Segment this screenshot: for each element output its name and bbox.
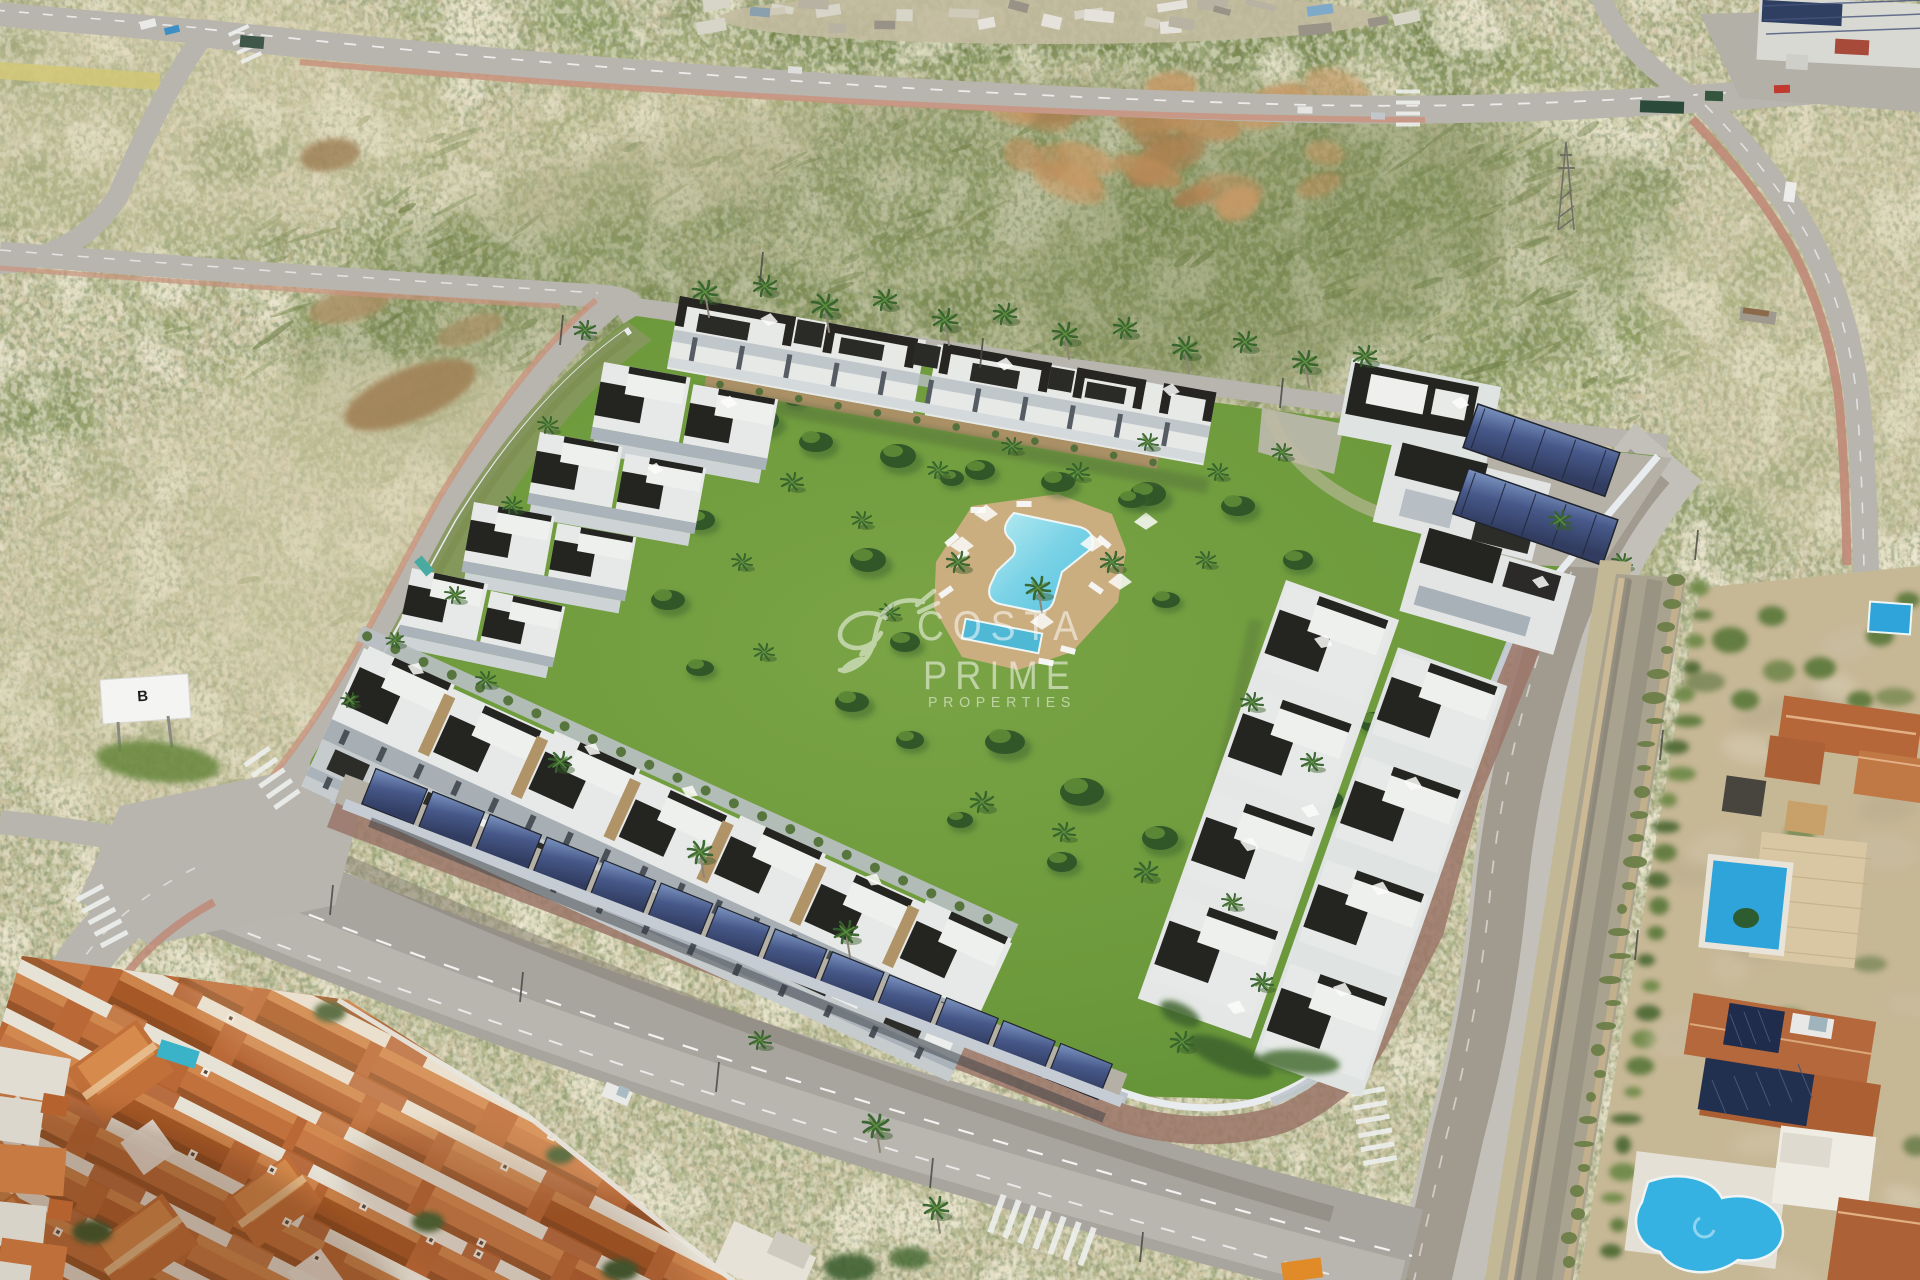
- svg-text:B: B: [137, 688, 149, 706]
- svg-text:PROPERTIES: PROPERTIES: [928, 694, 1076, 711]
- svg-text:COSTA: COSTA: [917, 602, 1087, 649]
- svg-text:PRIME: PRIME: [923, 654, 1078, 698]
